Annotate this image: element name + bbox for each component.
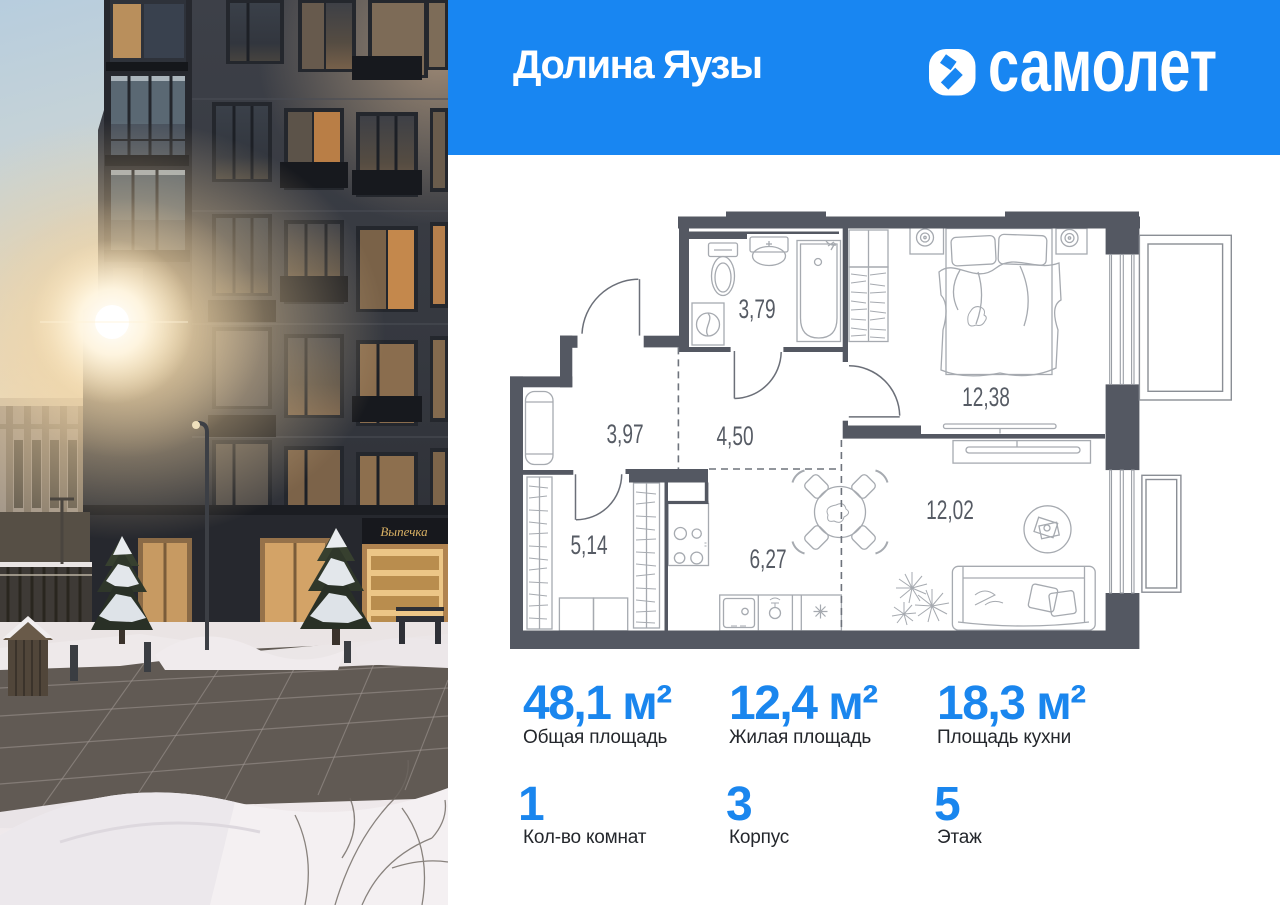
svg-text:самолет: самолет [988,24,1217,107]
svg-text:6,27: 6,27 [749,544,786,574]
svg-text:3,97: 3,97 [606,419,643,449]
svg-text:3,79: 3,79 [738,294,775,324]
svg-text:5,14: 5,14 [570,530,607,560]
svg-text:Выпечка: Выпечка [380,524,428,539]
svg-text:Долина Яузы: Долина Яузы [513,43,763,87]
svg-text:12,38: 12,38 [962,382,1010,412]
svg-text:12,02: 12,02 [926,495,974,525]
svg-text:4,50: 4,50 [716,421,753,451]
